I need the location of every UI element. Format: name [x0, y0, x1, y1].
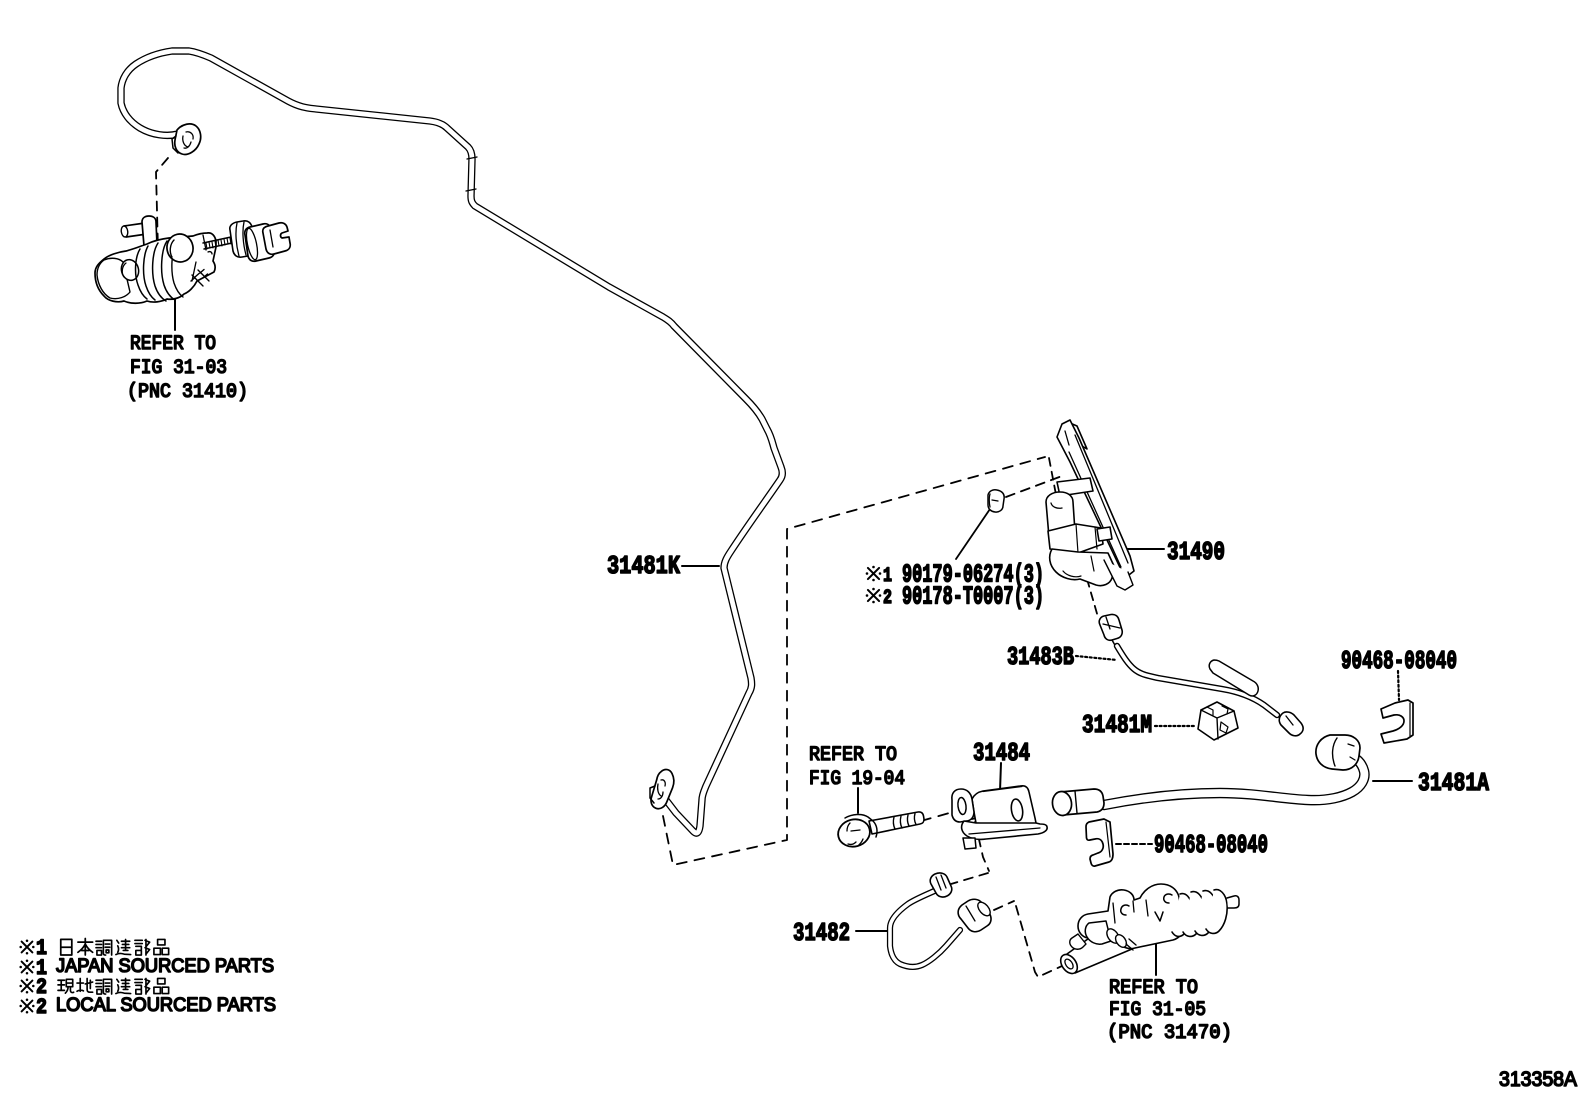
svg-text:31490: 31490 — [1167, 537, 1225, 567]
svg-text:1: 1 — [883, 565, 892, 588]
svg-text:REFER TO: REFER TO — [809, 744, 897, 767]
svg-text:REFER TO: REFER TO — [1109, 977, 1198, 1000]
svg-text:31481M: 31481M — [1082, 710, 1152, 740]
svg-text:90468-08040: 90468-08040 — [1341, 646, 1457, 676]
svg-text:JAPAN SOURCED PARTS: JAPAN SOURCED PARTS — [56, 956, 274, 977]
svg-text:90178-T0007(3): 90178-T0007(3) — [902, 582, 1044, 612]
svg-text:FIG 31-03: FIG 31-03 — [130, 357, 227, 380]
svg-text:31482: 31482 — [793, 918, 850, 948]
svg-text:FIG 19-04: FIG 19-04 — [809, 768, 905, 791]
svg-text:31481A: 31481A — [1418, 768, 1489, 798]
svg-text:313358A: 313358A — [1499, 1068, 1577, 1091]
svg-text:2: 2 — [36, 995, 47, 1020]
svg-text:LOCAL SOURCED PARTS: LOCAL SOURCED PARTS — [56, 995, 276, 1016]
svg-text:(PNC 31470): (PNC 31470) — [1107, 1022, 1232, 1045]
svg-text:90468-08040: 90468-08040 — [1154, 830, 1268, 860]
svg-text:2: 2 — [883, 587, 892, 610]
svg-text:FIG 31-05: FIG 31-05 — [1109, 999, 1206, 1022]
svg-text:31484: 31484 — [973, 738, 1030, 768]
svg-text:REFER TO: REFER TO — [130, 333, 216, 356]
svg-text:31483B: 31483B — [1007, 642, 1074, 672]
svg-text:(PNC 31410): (PNC 31410) — [127, 381, 248, 404]
svg-text:31481K: 31481K — [607, 551, 680, 581]
